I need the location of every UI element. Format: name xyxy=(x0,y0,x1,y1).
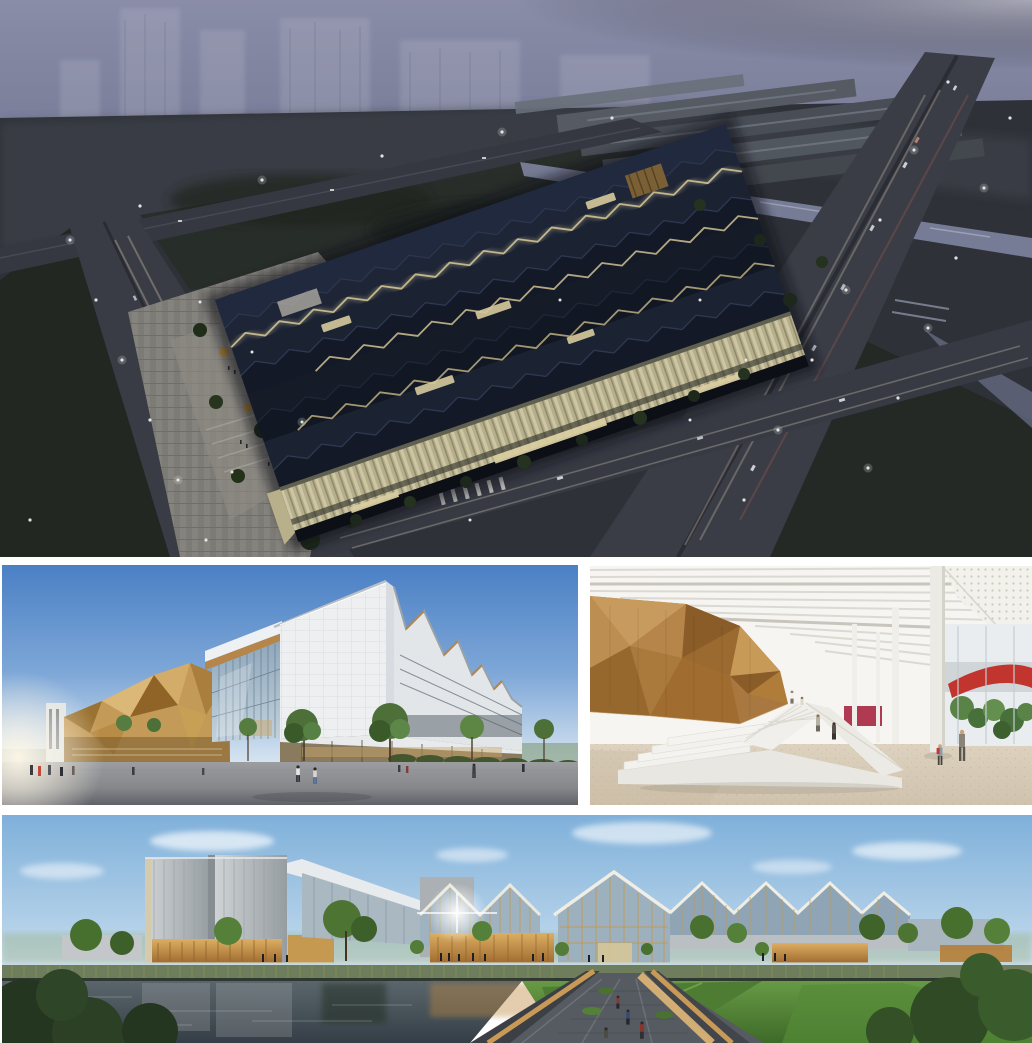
interior-svg xyxy=(590,566,1032,805)
dusk-vignette xyxy=(0,0,1032,557)
panel-waterfront-view xyxy=(2,815,1032,1043)
street-view-svg xyxy=(2,565,578,805)
foreground-shadow xyxy=(252,792,372,802)
embankment-reeds xyxy=(2,965,1032,981)
panel-street-view xyxy=(2,565,578,805)
glass-wall-and-garden xyxy=(942,624,1032,746)
waterfront-svg xyxy=(2,815,1032,1043)
aerial-dusk-svg xyxy=(0,0,1032,557)
architectural-render-collage xyxy=(0,0,1032,1043)
panel-interior-view xyxy=(590,566,1032,805)
panel-aerial-dusk-view xyxy=(0,0,1032,557)
golden-glowing-base xyxy=(152,935,334,963)
